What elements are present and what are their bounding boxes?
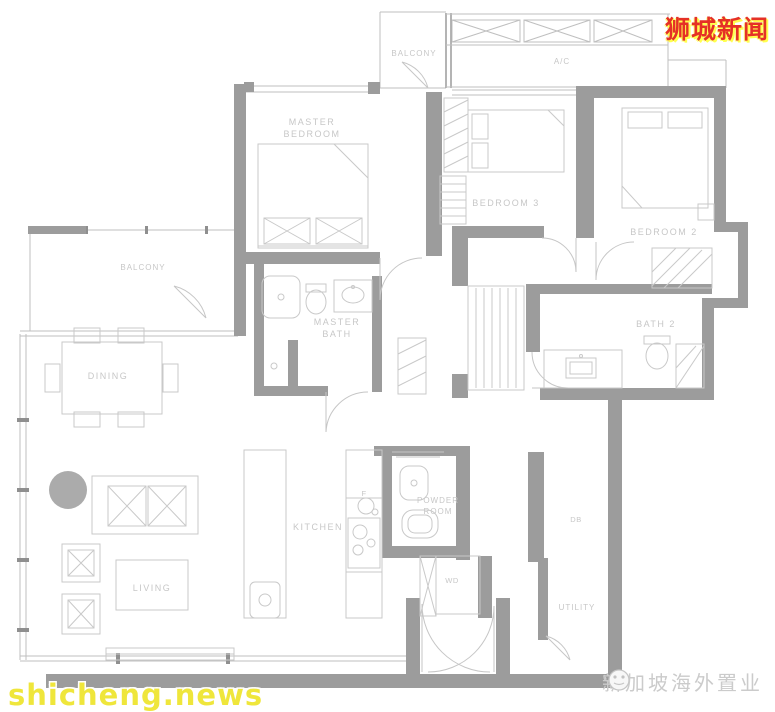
label-master-bath-2: BATH (322, 329, 351, 339)
label-bath2: BATH 2 (636, 319, 676, 329)
label-master-bedroom-1: MASTER (289, 117, 336, 127)
living-furniture (49, 471, 234, 660)
label-db: DB (570, 515, 581, 524)
master-bath-door (326, 392, 368, 432)
label-fridge: F (361, 489, 366, 498)
label-bedroom2: BEDROOM 2 (630, 227, 698, 237)
label-bedroom3: BEDROOM 3 (472, 198, 540, 208)
label-living: LIVING (133, 583, 172, 593)
label-kitchen: KITCHEN (293, 522, 343, 532)
utility-door (546, 636, 570, 660)
bath2-fixtures (544, 336, 704, 388)
master-bedroom-door (380, 258, 422, 300)
watermark-chinese: 狮城新闻 (665, 10, 769, 46)
side-table-round (49, 471, 87, 509)
label-balcony-left: BALCONY (120, 263, 165, 272)
kitchen-fixtures (244, 450, 382, 618)
label-dining: DINING (88, 371, 129, 381)
brand-logo-icon (602, 667, 632, 693)
walls (28, 82, 748, 688)
label-powder-2: ROOM (424, 507, 453, 516)
label-master-bedroom-2: BEDROOM (283, 129, 340, 139)
bedroom2-door (596, 242, 634, 280)
label-wd: WD (445, 576, 459, 585)
bedroom2-furniture (622, 108, 714, 288)
master-bedroom-furniture (258, 144, 368, 248)
label-ac: A/C (554, 57, 570, 66)
floorplan-svg: BALCONY A/C MASTER BEDROOM BEDROOM 3 BED… (0, 0, 775, 712)
brand-footer: 新加坡海外置业 (602, 667, 763, 696)
wd-closet (420, 556, 480, 616)
balcony-left-door (174, 286, 206, 318)
label-utility: UTILITY (559, 603, 596, 612)
watermark-shicheng: shicheng.news (8, 678, 263, 712)
label-balcony-top: BALCONY (391, 49, 436, 58)
label-master-bath-1: MASTER (314, 317, 361, 327)
bath2-door (532, 352, 568, 388)
bedroom3-door (542, 238, 576, 272)
floorplan-page: BALCONY A/C MASTER BEDROOM BEDROOM 3 BED… (0, 0, 775, 712)
label-powder-1: POWDER (417, 496, 459, 505)
balcony-top-door (402, 62, 428, 88)
